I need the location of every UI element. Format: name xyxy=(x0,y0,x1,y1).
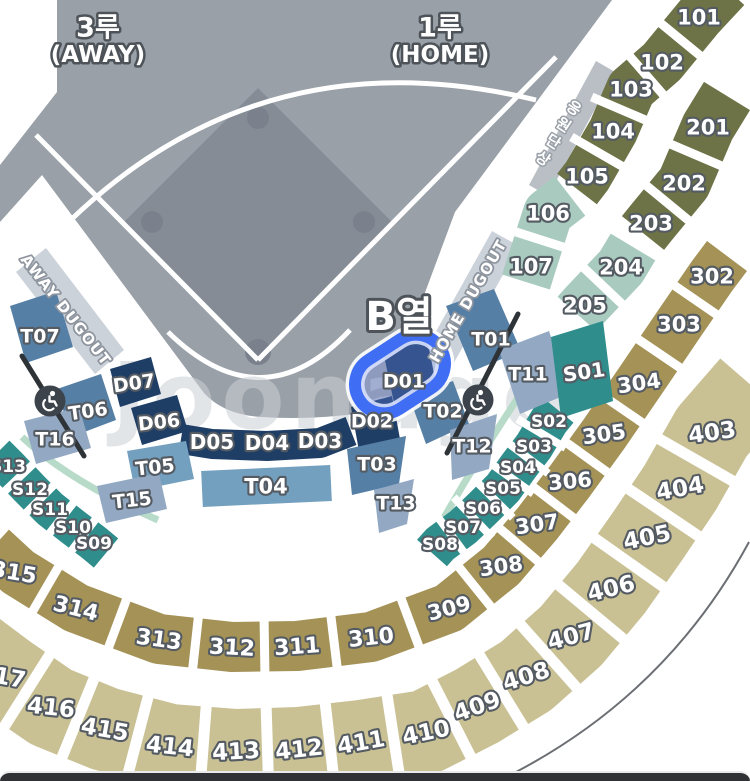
stadium-seat-map: Joonago 10110210310410510610720120220320… xyxy=(0,0,750,781)
section-label-T05[interactable]: T05 xyxy=(134,455,175,481)
section-label-T11[interactable]: T11 xyxy=(508,364,547,386)
wheelchair-accessible-icon xyxy=(463,385,494,416)
section-label-S06[interactable]: S06 xyxy=(465,499,501,519)
section-label-302[interactable]: 302 xyxy=(690,264,734,288)
aisle-gap xyxy=(264,614,265,680)
section-label-106[interactable]: 106 xyxy=(526,201,570,225)
label-1b-home-line2: (HOME) xyxy=(391,42,489,68)
section-label-T15[interactable]: T15 xyxy=(111,488,152,514)
section-label-414[interactable]: 414 xyxy=(145,732,195,763)
section-label-T03[interactable]: T03 xyxy=(357,454,396,476)
section-label-306[interactable]: 306 xyxy=(547,467,593,495)
section-label-S13[interactable]: S13 xyxy=(0,457,26,477)
section-label-T02[interactable]: T02 xyxy=(423,401,462,423)
section-label-D03[interactable]: D03 xyxy=(298,429,342,453)
section-label-T16[interactable]: T16 xyxy=(35,429,74,451)
section-label-S04[interactable]: S04 xyxy=(500,458,536,478)
section-label-303[interactable]: 303 xyxy=(657,312,701,336)
label-3b-away-line2: (AWAY) xyxy=(51,42,145,68)
label-1b-home-line1: 1루 xyxy=(418,12,462,43)
section-label-416[interactable]: 416 xyxy=(26,693,76,724)
section-label-107[interactable]: 107 xyxy=(509,254,553,278)
section-label-201[interactable]: 201 xyxy=(686,115,730,139)
section-label-103[interactable]: 103 xyxy=(609,77,653,101)
section-label-105[interactable]: 105 xyxy=(565,164,609,188)
section-label-D02[interactable]: D02 xyxy=(351,411,393,433)
section-label-T12[interactable]: T12 xyxy=(452,436,491,458)
section-label-204[interactable]: 204 xyxy=(599,255,643,279)
section-label-S08[interactable]: S08 xyxy=(422,535,458,555)
second-base-circle xyxy=(247,107,269,129)
section-label-205[interactable]: 205 xyxy=(563,293,607,317)
section-label-S12[interactable]: S12 xyxy=(12,480,48,500)
aisle-gap xyxy=(199,699,207,781)
section-label-203[interactable]: 203 xyxy=(629,211,673,235)
section-label-413[interactable]: 413 xyxy=(211,738,260,766)
section-label-D04[interactable]: D04 xyxy=(245,431,289,455)
section-label-312[interactable]: 312 xyxy=(208,635,255,662)
aisle-gap xyxy=(266,700,269,781)
section-label-S11[interactable]: S11 xyxy=(32,500,68,520)
section-label-202[interactable]: 202 xyxy=(662,171,706,195)
section-label-D05[interactable]: D05 xyxy=(190,430,234,454)
bottom-panel-edge[interactable] xyxy=(0,771,750,781)
section-label-S03[interactable]: S03 xyxy=(516,437,552,457)
section-label-T04[interactable]: T04 xyxy=(244,474,288,498)
section-label-104[interactable]: 104 xyxy=(591,119,635,143)
label-3b-away-line1: 3루 xyxy=(76,12,120,43)
section-label-T07[interactable]: T07 xyxy=(20,326,59,348)
wheelchair-accessible-icon xyxy=(35,386,66,417)
section-label-T01[interactable]: T01 xyxy=(471,329,510,351)
section-label-S10[interactable]: S10 xyxy=(55,518,91,538)
section-label-T13[interactable]: T13 xyxy=(376,493,415,515)
section-label-412[interactable]: 412 xyxy=(274,735,324,766)
section-label-S02[interactable]: S02 xyxy=(531,412,567,432)
section-label-D01[interactable]: D01 xyxy=(383,371,425,393)
section-label-S05[interactable]: S05 xyxy=(485,479,521,499)
section-label-311[interactable]: 311 xyxy=(273,633,321,661)
first-base-circle xyxy=(353,211,375,233)
section-label-310[interactable]: 310 xyxy=(347,623,395,653)
section-label-D06[interactable]: D06 xyxy=(137,410,181,436)
section-label-101[interactable]: 101 xyxy=(677,5,721,29)
section-label-102[interactable]: 102 xyxy=(640,50,684,74)
third-base-circle xyxy=(141,211,163,233)
selected-row-label: B열 xyxy=(365,294,432,340)
